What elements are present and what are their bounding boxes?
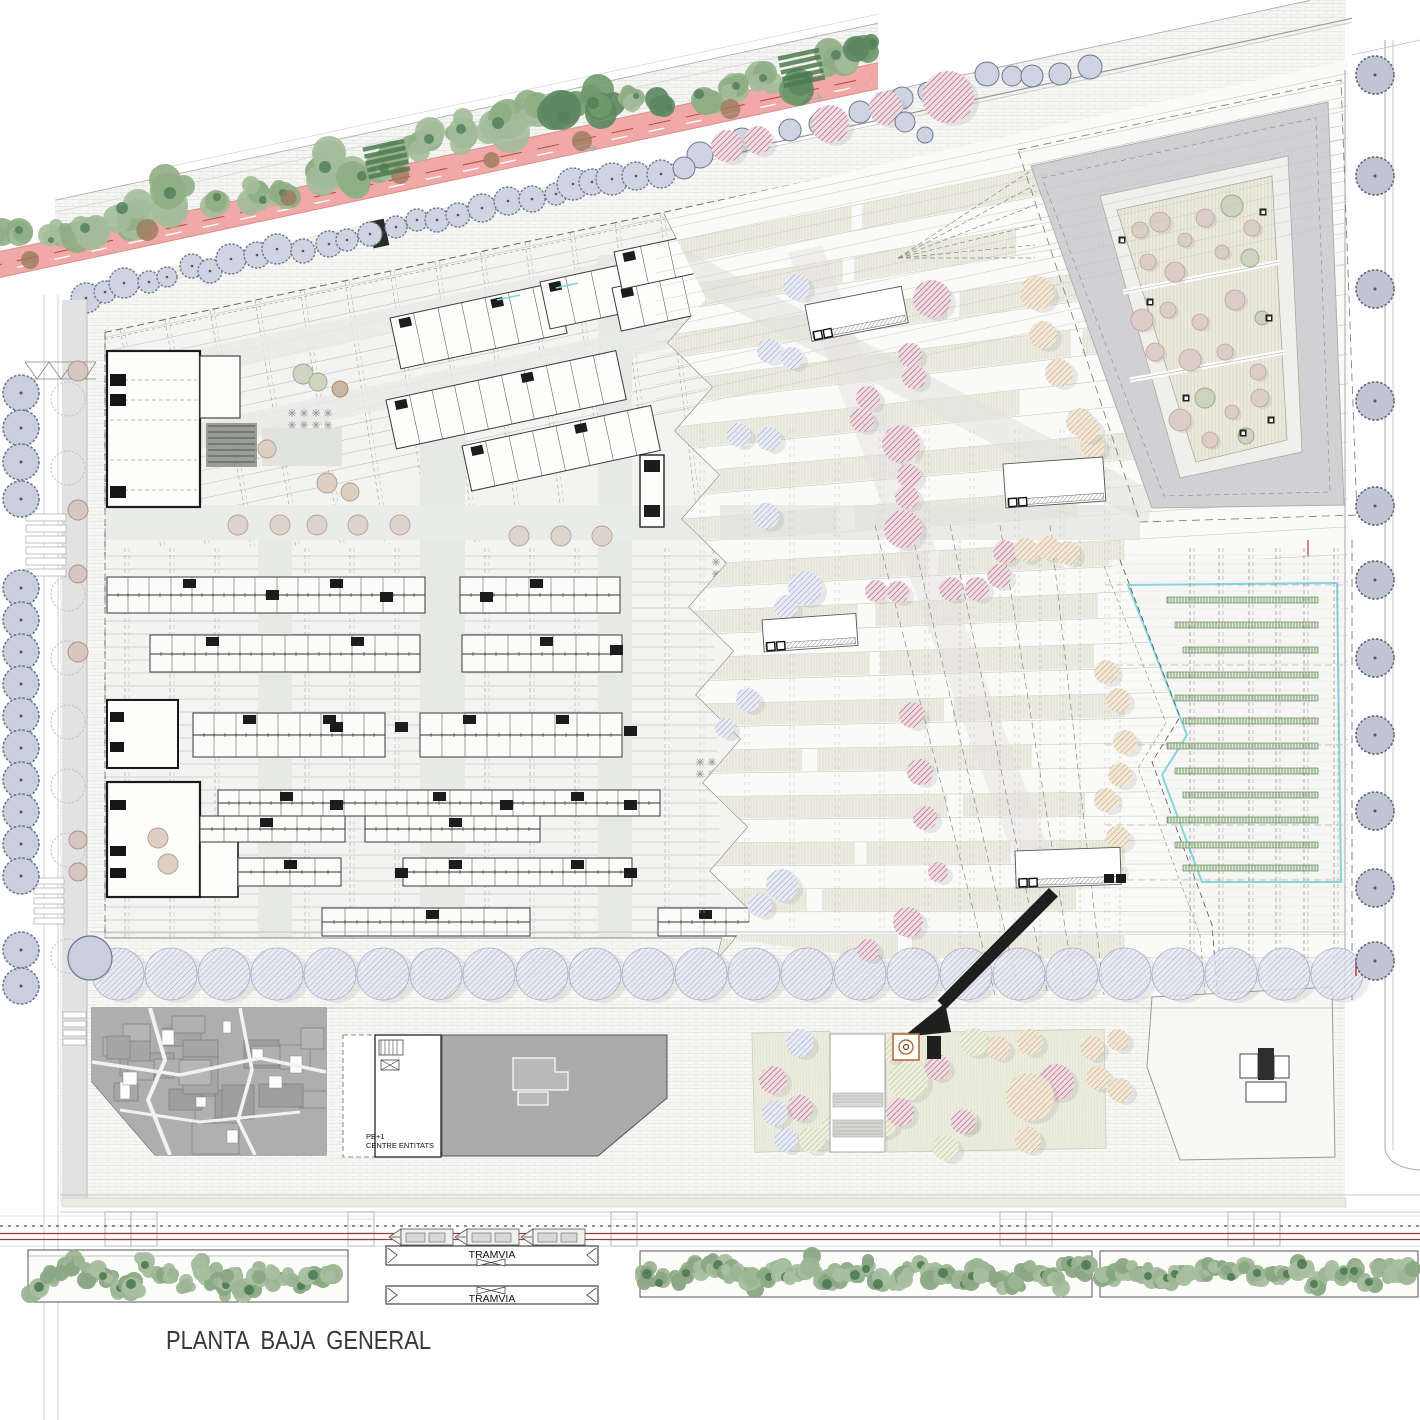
svg-text:PLANTA BAJA GENERAL: PLANTA BAJA GENERAL <box>166 1327 431 1355</box>
svg-text:TRAMVIA: TRAMVIA <box>469 1249 516 1261</box>
svg-text:PB+1: PB+1 <box>366 1132 385 1141</box>
svg-text:CENTRE ENTITATS: CENTRE ENTITATS <box>366 1141 434 1150</box>
svg-text:TRAMVIA: TRAMVIA <box>469 1293 516 1305</box>
